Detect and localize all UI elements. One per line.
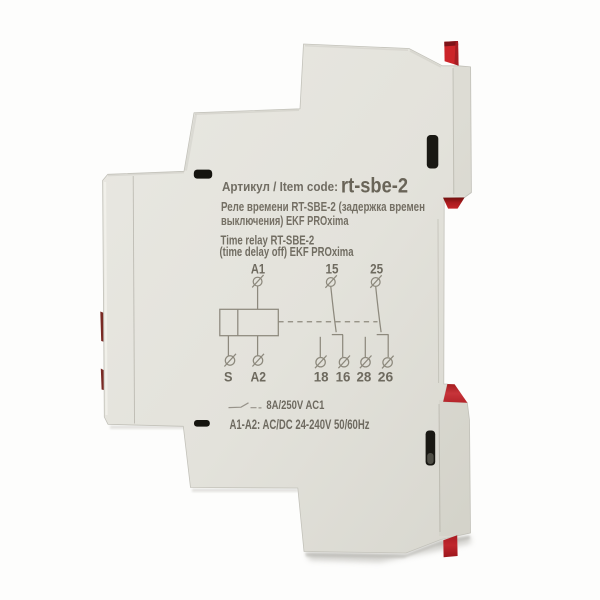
svg-text:18: 18 [314,370,329,386]
svg-text:8A/250V AC1: 8A/250V AC1 [266,398,324,412]
svg-text:15: 15 [326,262,339,277]
svg-text:28: 28 [357,370,372,386]
svg-text:A1: A1 [251,262,266,277]
svg-text:S: S [224,370,233,386]
svg-text:26: 26 [378,370,394,386]
svg-text:Артикул / Item code:: Артикул / Item code: [222,180,338,194]
svg-text:25: 25 [370,262,383,277]
svg-text:A2: A2 [250,370,266,386]
svg-text:Реле времени RT-SBE-2 (задержк: Реле времени RT-SBE-2 (задержка времен [221,199,425,214]
svg-text:A1-A2: AC/DC 24-240V 50/60Hz: A1-A2: AC/DC 24-240V 50/60Hz [230,416,370,432]
svg-text:16: 16 [336,370,351,386]
svg-text:rt-sbe-2: rt-sbe-2 [341,173,408,197]
svg-text:(time delay off) EKF PROxima: (time delay off) EKF PROxima [220,245,355,259]
svg-text:выключения) EKF PROxima: выключения) EKF PROxima [221,213,349,228]
